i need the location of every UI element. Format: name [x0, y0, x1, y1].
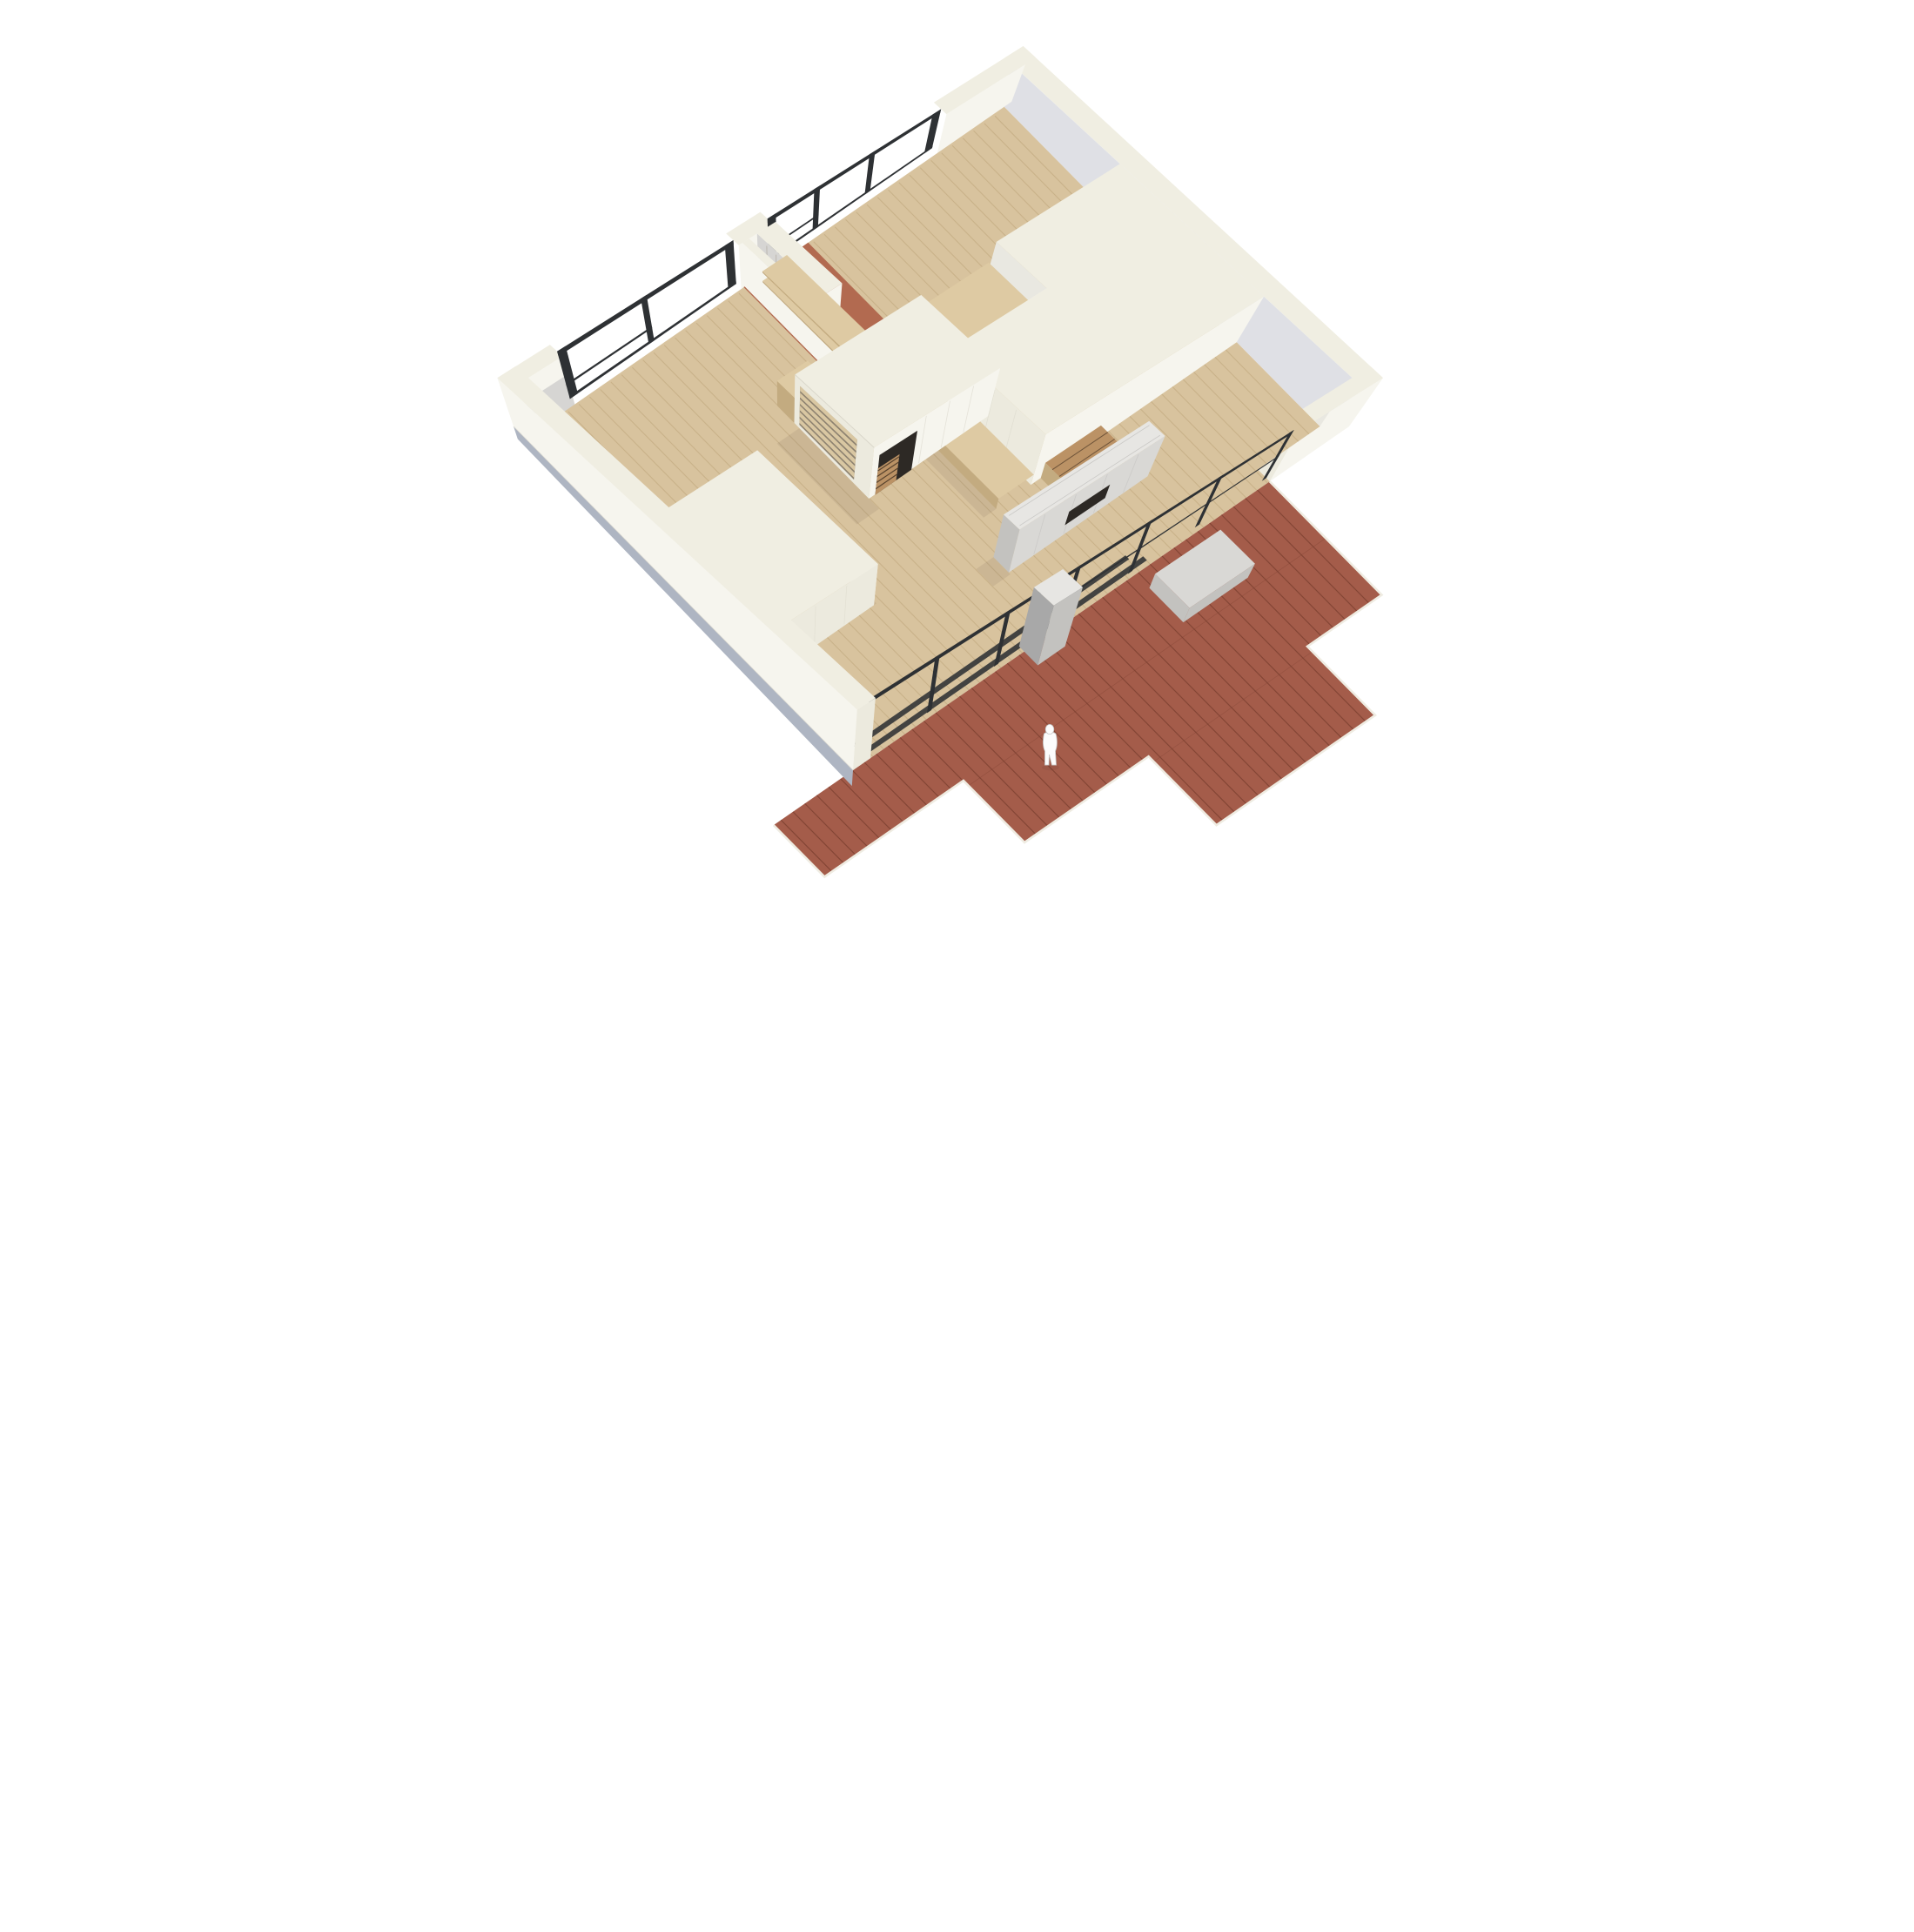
- architectural-model-image: [479, 0, 1436, 966]
- model-photo: [479, 0, 1436, 966]
